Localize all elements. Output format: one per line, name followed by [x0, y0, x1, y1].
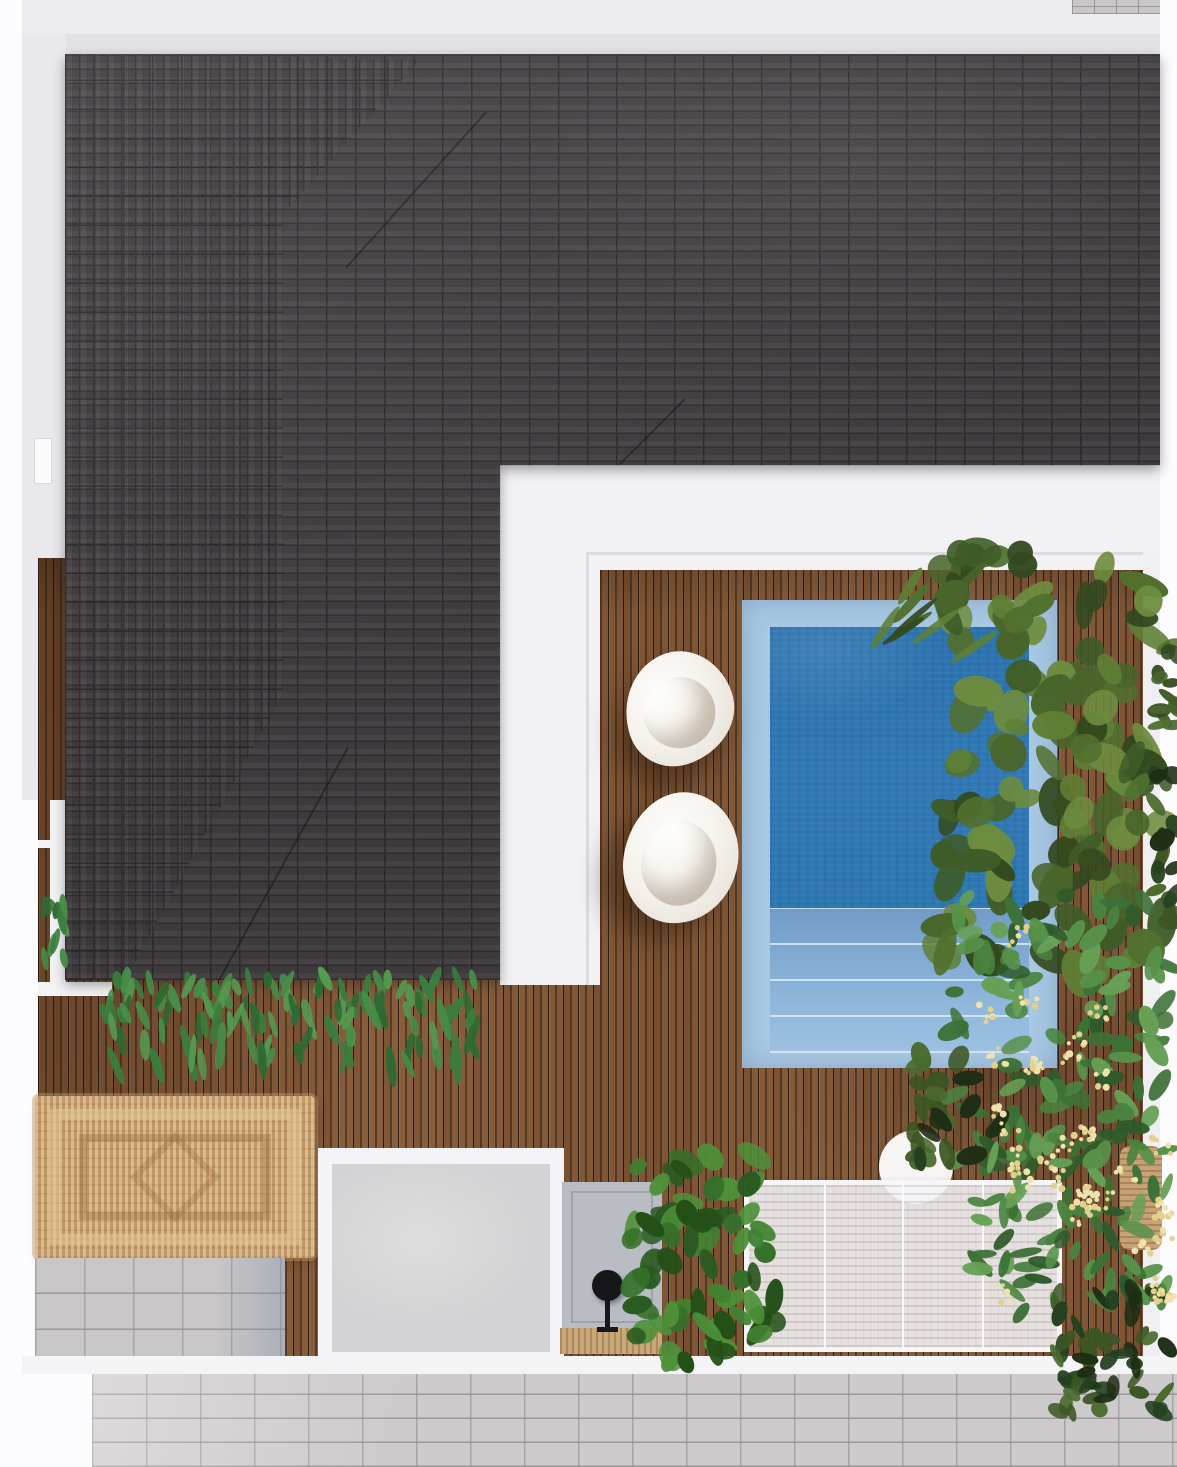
pool-steps	[770, 908, 1029, 1053]
outdoor-lamp	[592, 1270, 623, 1301]
jute-rug	[35, 1096, 315, 1258]
side-gate-marker	[34, 438, 52, 484]
roof-eave-band	[22, 34, 1160, 56]
paver-patch	[35, 1258, 285, 1366]
wicker-chair	[1120, 1146, 1162, 1250]
paver-walkway	[92, 1374, 1177, 1467]
site-plan-render	[0, 0, 1177, 1467]
pool-water	[770, 627, 1029, 908]
outdoor-lamp-stem	[605, 1299, 610, 1329]
wall-deck-gap	[50, 800, 66, 985]
neighbor-paver-patch	[1072, 0, 1160, 14]
pergola-beam	[824, 1180, 826, 1352]
outdoor-lamp-base	[597, 1327, 618, 1332]
pergola-beam	[982, 1180, 984, 1352]
plunge-pool	[742, 600, 1057, 1068]
boundary-wall-top	[22, 0, 1160, 34]
yard-edge-band	[22, 1356, 1177, 1374]
utility-pad	[562, 1182, 662, 1332]
concrete-pad	[332, 1164, 550, 1352]
pergola-beam	[902, 1180, 904, 1352]
